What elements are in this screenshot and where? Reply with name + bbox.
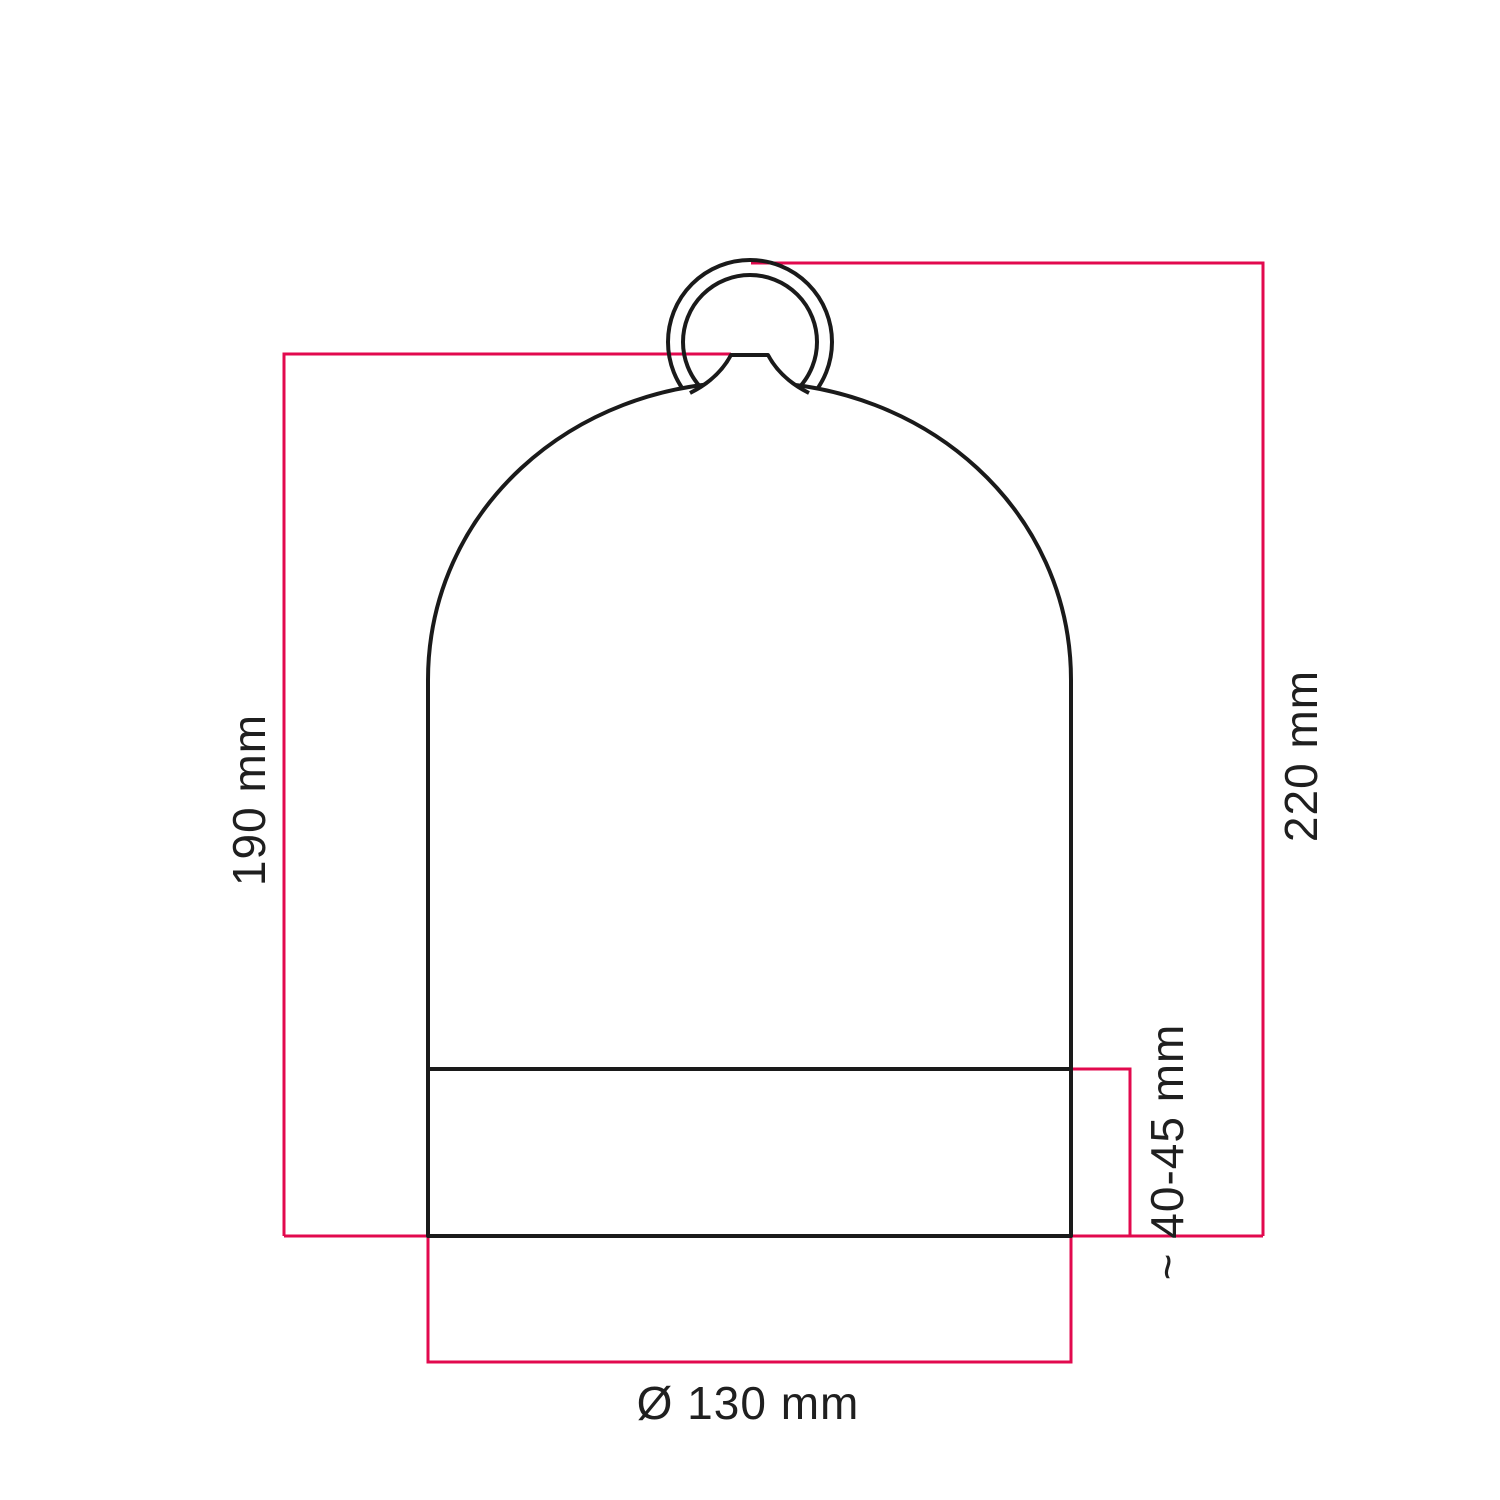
label-total-height: 220 mm bbox=[1275, 670, 1327, 842]
label-base-height: ~ 40-45 mm bbox=[1141, 1024, 1193, 1281]
label-diameter: Ø 130 mm bbox=[637, 1377, 860, 1429]
bell-body bbox=[428, 382, 1071, 1236]
label-inner-height: 190 mm bbox=[223, 714, 275, 886]
canvas: 190 mm 220 mm ~ 40-45 mm Ø 130 mm bbox=[0, 0, 1500, 1500]
lampshade-technical-drawing: 190 mm 220 mm ~ 40-45 mm Ø 130 mm bbox=[0, 0, 1500, 1500]
